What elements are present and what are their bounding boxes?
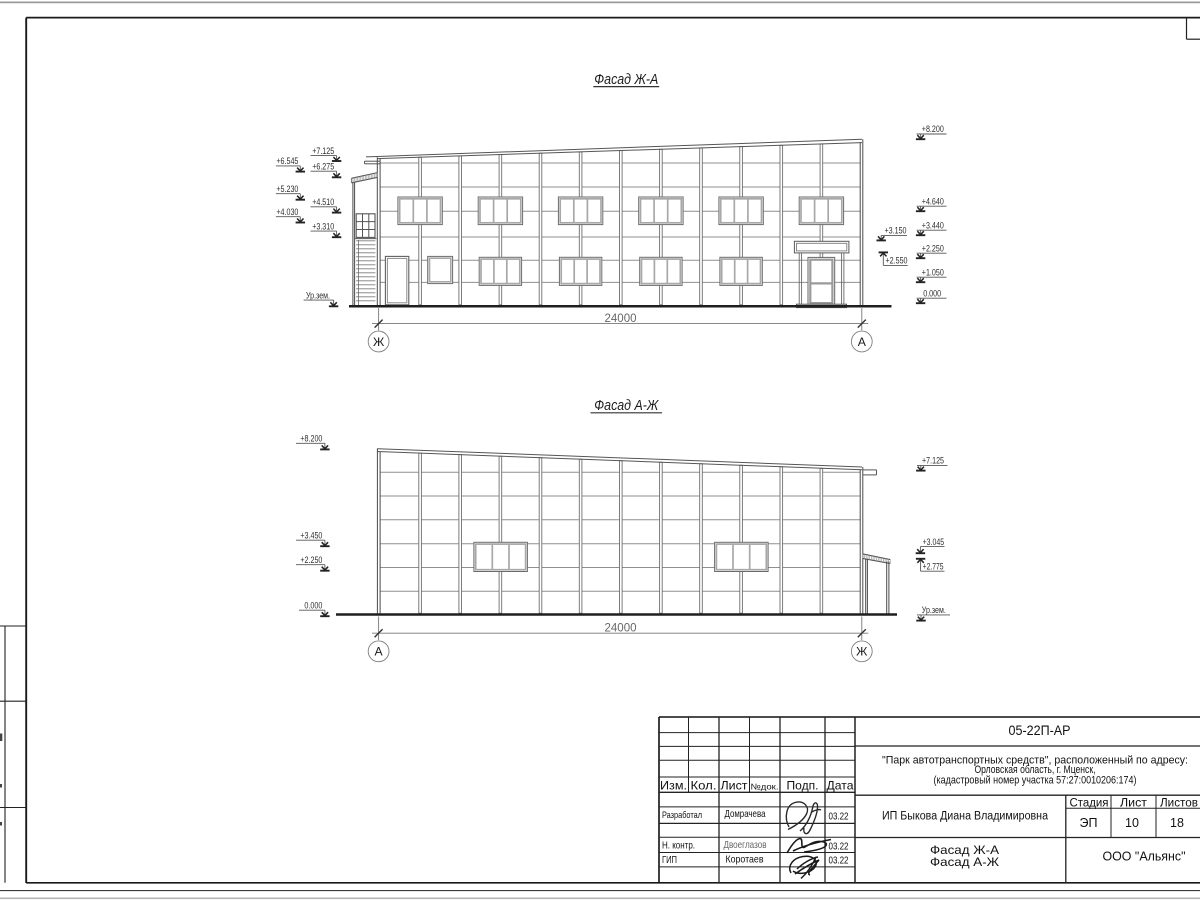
- svg-text:0.000: 0.000: [923, 288, 941, 298]
- svg-text:Подп.: Подп.: [787, 778, 819, 792]
- svg-text:Листов: Листов: [1160, 798, 1198, 810]
- svg-text:ЭП: ЭП: [1080, 816, 1098, 830]
- svg-text:24000: 24000: [605, 313, 637, 325]
- svg-text:Двоеглазов: Двоеглазов: [724, 839, 767, 851]
- svg-text:Ур.зем.: Ур.зем.: [306, 290, 330, 300]
- svg-text:+6.275: +6.275: [312, 161, 334, 171]
- svg-text:Разработал: Разработал: [662, 810, 702, 821]
- svg-text:+3.150: +3.150: [885, 226, 907, 236]
- svg-text:Стадия: Стадия: [1070, 798, 1109, 810]
- svg-text:Дата: Дата: [827, 778, 854, 792]
- svg-text:+4.640: +4.640: [922, 196, 944, 206]
- svg-text:Фасад А-Ж: Фасад А-Ж: [930, 855, 999, 869]
- svg-text:+7.125: +7.125: [312, 146, 334, 156]
- svg-text:ИП Быкова Диана Владимировна: ИП Быкова Диана Владимировна: [882, 811, 1049, 823]
- svg-text:Изм.: Изм.: [660, 778, 687, 792]
- svg-text:03.22: 03.22: [829, 812, 849, 823]
- svg-text:10: 10: [1125, 816, 1139, 830]
- svg-text:Ур.зем.: Ур.зем.: [922, 605, 946, 615]
- svg-text:+2.250: +2.250: [922, 243, 944, 253]
- svg-text:Фасад А-Ж: Фасад А-Ж: [594, 398, 659, 414]
- svg-text:А: А: [858, 335, 867, 349]
- svg-text:+2.550: +2.550: [886, 256, 908, 266]
- svg-text:Лист: Лист: [721, 778, 749, 792]
- svg-text:ГИП: ГИП: [662, 855, 677, 866]
- svg-text:+5.230: +5.230: [276, 184, 298, 194]
- svg-text:А: А: [375, 645, 384, 659]
- svg-text:Кол.: Кол.: [691, 778, 717, 792]
- svg-text:+6.545: +6.545: [276, 156, 298, 166]
- svg-text:+7.125: +7.125: [922, 456, 944, 466]
- svg-text:+8.200: +8.200: [922, 124, 944, 134]
- svg-text:+3.440: +3.440: [922, 220, 944, 230]
- svg-text:24000: 24000: [605, 623, 637, 635]
- svg-text:+3.310: +3.310: [312, 221, 334, 231]
- svg-text:№док.: №док.: [751, 781, 779, 791]
- svg-text:05-22П-АР: 05-22П-АР: [1009, 723, 1071, 738]
- svg-text:+1.050: +1.050: [922, 267, 944, 277]
- svg-text:(кадастровый номер участка 57:: (кадастровый номер участка 57:27:0010206…: [934, 775, 1137, 787]
- svg-text:+3.045: +3.045: [923, 537, 945, 547]
- svg-text:18: 18: [1170, 816, 1184, 830]
- svg-text:Домрачева: Домрачева: [725, 808, 766, 820]
- svg-text:+8.200: +8.200: [300, 434, 322, 444]
- svg-text:Ж: Ж: [373, 335, 385, 349]
- svg-text:+4.510: +4.510: [312, 197, 334, 207]
- svg-text:+2.250: +2.250: [300, 555, 322, 565]
- svg-text:03.22: 03.22: [829, 856, 849, 867]
- svg-text:Фасад Ж-А: Фасад Ж-А: [594, 72, 658, 88]
- svg-text:Н. контр.: Н. контр.: [662, 841, 695, 852]
- svg-text:0.000: 0.000: [304, 600, 322, 610]
- svg-text:ООО "Альянс": ООО "Альянс": [1103, 849, 1186, 863]
- svg-text:+4.030: +4.030: [276, 207, 298, 217]
- svg-text:+2.775: +2.775: [923, 561, 944, 571]
- svg-text:+3.450: +3.450: [300, 530, 322, 540]
- svg-text:Лист: Лист: [1120, 798, 1148, 810]
- svg-text:03.22: 03.22: [829, 842, 849, 853]
- svg-text:Коротаев: Коротаев: [726, 854, 764, 866]
- svg-text:Ж: Ж: [856, 645, 868, 659]
